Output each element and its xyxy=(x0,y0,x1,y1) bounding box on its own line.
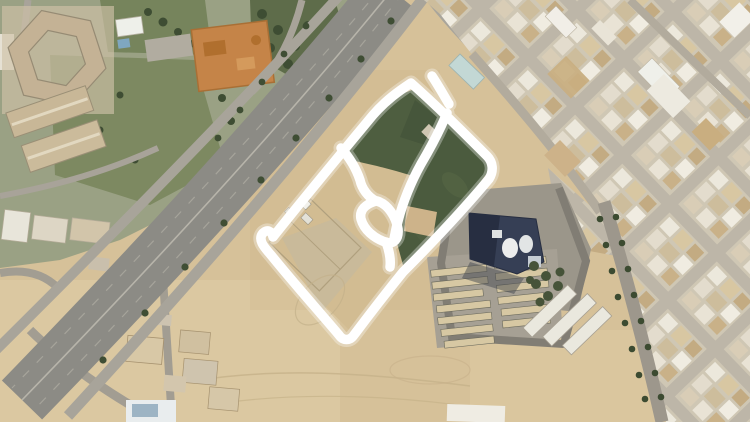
satellite-map-canvas[interactable] xyxy=(0,0,750,422)
blue-roof xyxy=(132,404,158,417)
annotation-tail-stroke xyxy=(386,242,390,267)
white-tank xyxy=(519,235,533,253)
bottom-white-building xyxy=(447,404,506,422)
satellite-map xyxy=(0,0,750,422)
white-tank xyxy=(502,238,518,258)
